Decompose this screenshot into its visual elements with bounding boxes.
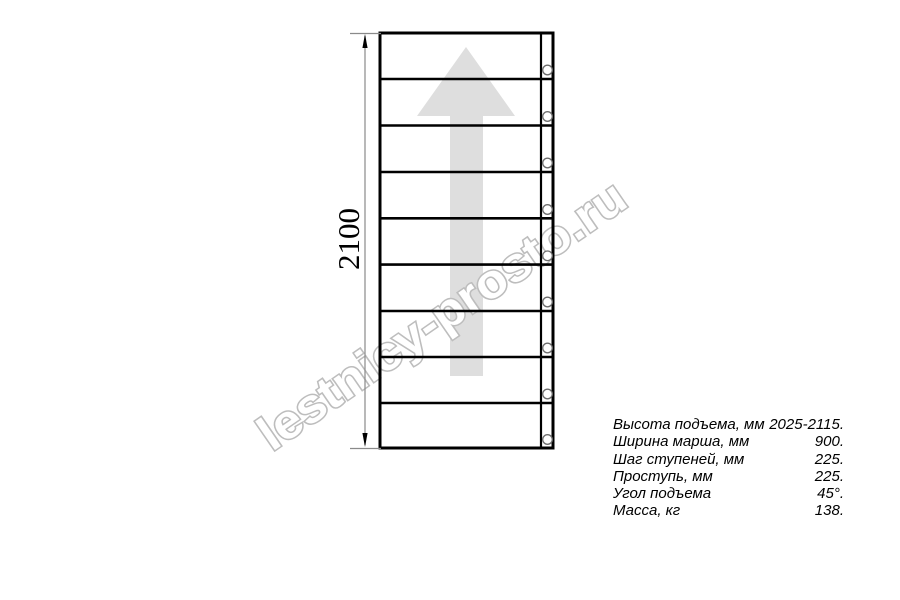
dimension-arrow-down-icon bbox=[362, 433, 367, 447]
fastener-icon bbox=[543, 343, 553, 353]
fastener-icon bbox=[543, 435, 553, 445]
spec-row-angle: Угол подъема 45°. bbox=[613, 485, 844, 502]
fastener-icon bbox=[543, 65, 553, 75]
spec-label: Высота подъема, мм bbox=[613, 416, 765, 433]
spec-row-height: Высота подъема, мм 2025-2115. bbox=[613, 416, 844, 433]
spec-value: 138. bbox=[815, 502, 844, 519]
spec-value: 45°. bbox=[817, 485, 844, 502]
fastener-icon bbox=[543, 297, 553, 307]
spec-value: 900. bbox=[815, 433, 844, 450]
spec-row-tread: Проступь, мм 225. bbox=[613, 468, 844, 485]
fastener-icon bbox=[543, 158, 553, 168]
spec-row-mass: Масса, кг 138. bbox=[613, 502, 844, 519]
spec-label: Шаг ступеней, мм bbox=[613, 451, 744, 468]
spec-row-width: Ширина марша, мм 900. bbox=[613, 433, 844, 450]
dimension-value: 2100 bbox=[331, 208, 366, 270]
spec-label: Угол подъема bbox=[613, 485, 711, 502]
watermark-text: lestnicy-prosto.ru bbox=[248, 170, 636, 461]
spec-label: Проступь, мм bbox=[613, 468, 713, 485]
spec-table: Высота подъема, мм 2025-2115. Ширина мар… bbox=[613, 416, 844, 520]
fastener-icon bbox=[543, 205, 553, 215]
fastener-icon bbox=[543, 112, 553, 122]
fastener-icon bbox=[543, 251, 553, 261]
fastener-circles bbox=[543, 65, 553, 444]
spec-label: Масса, кг bbox=[613, 502, 680, 519]
spec-value: 2025-2115. bbox=[769, 416, 844, 433]
spec-value: 225. bbox=[815, 451, 844, 468]
page: lestnicy-prosto.ru bbox=[0, 0, 900, 600]
dimension-arrow-up-icon bbox=[362, 34, 367, 48]
fastener-icon bbox=[543, 389, 553, 399]
spec-value: 225. bbox=[815, 468, 844, 485]
spec-label: Ширина марша, мм bbox=[613, 433, 749, 450]
spec-row-step-pitch: Шаг ступеней, мм 225. bbox=[613, 451, 844, 468]
